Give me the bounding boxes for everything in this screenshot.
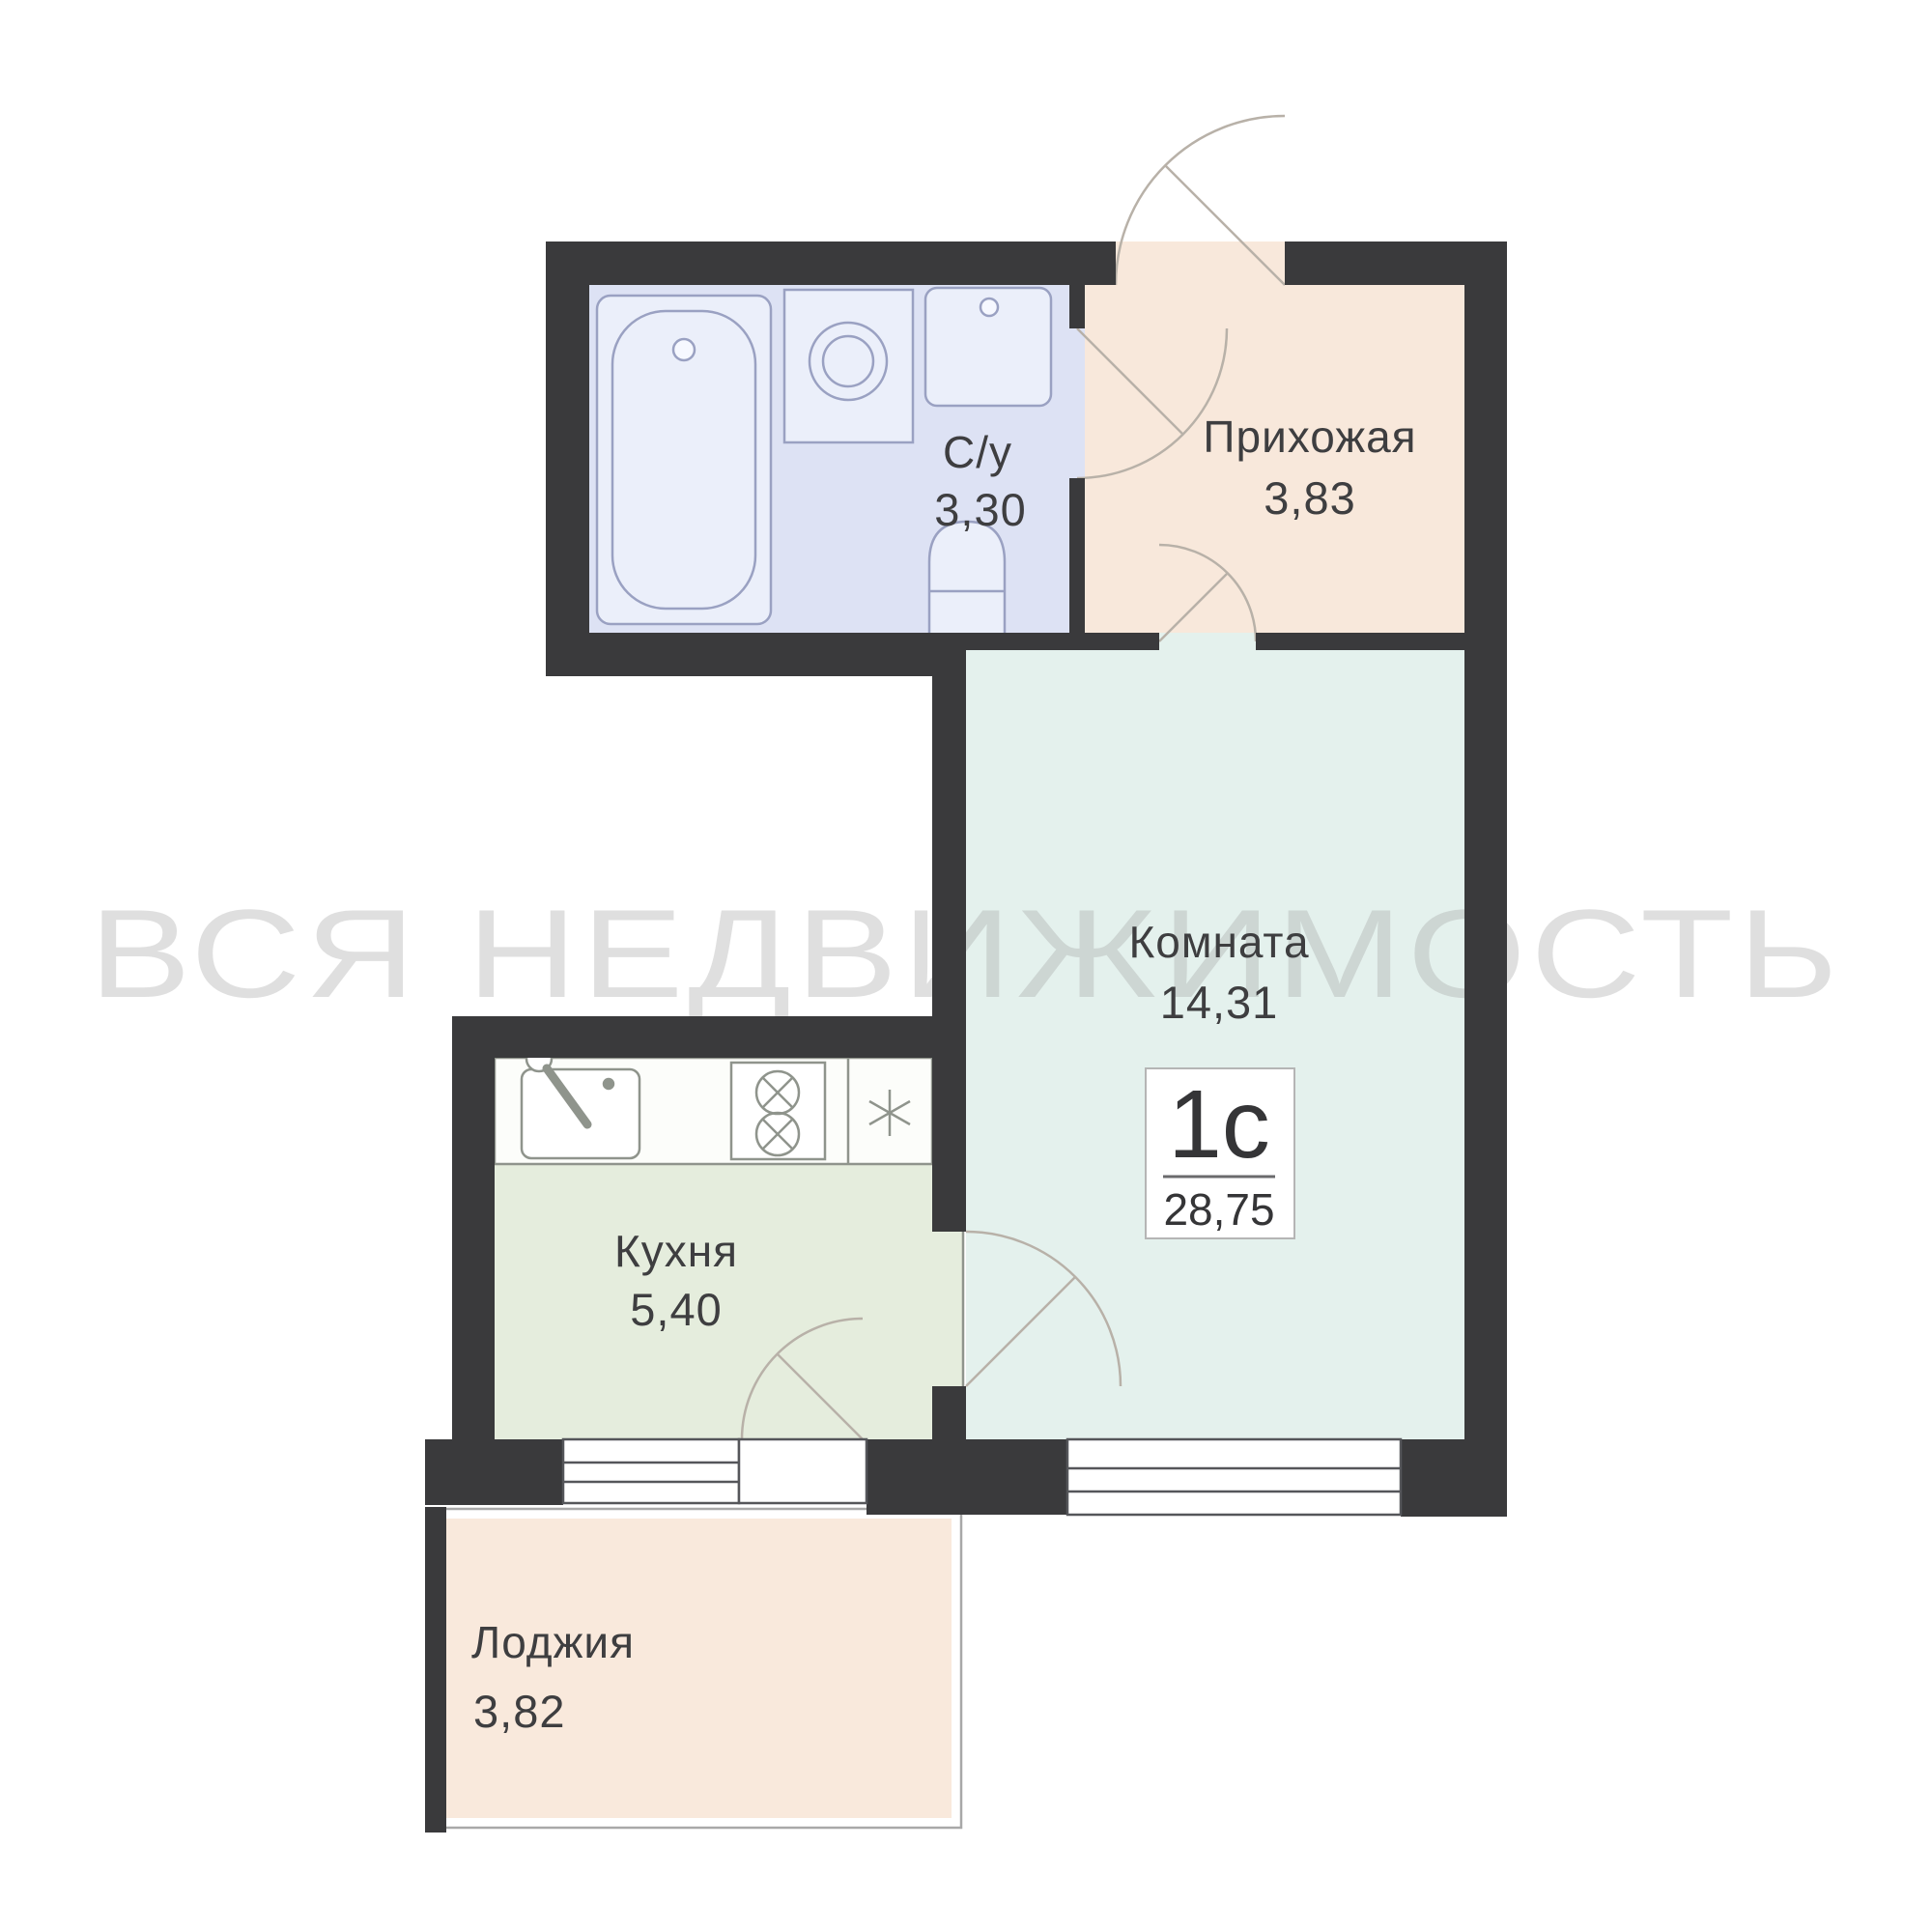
balcony-door-opening bbox=[739, 1439, 867, 1503]
kitchen-area: 5,40 bbox=[630, 1284, 722, 1335]
hallway-label: Прихожая bbox=[1203, 412, 1416, 462]
wall-loggia-left bbox=[425, 1507, 446, 1833]
wall-kitchen-top bbox=[452, 1016, 932, 1058]
wall-right bbox=[1464, 241, 1507, 1517]
wall-bathroom-bottom bbox=[546, 633, 966, 676]
toilet-icon bbox=[929, 522, 1005, 633]
floor-plan-drawing: ВСЯ НЕДВИЖИМОСТЬ bbox=[0, 0, 1932, 1932]
wall-bathroom-hallway-top bbox=[1069, 285, 1085, 328]
wall-room-window-right-pier bbox=[1401, 1439, 1507, 1517]
stove-icon bbox=[731, 1063, 825, 1159]
wall-room-left bbox=[932, 633, 966, 1232]
loggia-label: Лоджия bbox=[471, 1617, 635, 1667]
kitchen-label: Кухня bbox=[614, 1226, 738, 1276]
bathtub-icon bbox=[597, 296, 771, 624]
kitchen-window bbox=[563, 1439, 739, 1503]
wall-loggia-window-right-pier bbox=[867, 1439, 1067, 1515]
living-room-label: Комната bbox=[1128, 917, 1309, 967]
bathroom-sink-icon bbox=[925, 288, 1051, 406]
wall-loggia-window-left-pier bbox=[425, 1439, 563, 1505]
wall-hallway-room-left bbox=[966, 633, 1159, 650]
wall-kitchen-left bbox=[452, 1016, 495, 1439]
wall-bathroom-hallway-bottom bbox=[1069, 478, 1085, 633]
kitchen-door-gap-floor bbox=[932, 1232, 963, 1386]
wall-hallway-room-right bbox=[1256, 633, 1464, 650]
entrance-gap-floor bbox=[1116, 241, 1285, 285]
badge-type-label: 1с bbox=[1168, 1070, 1270, 1179]
living-room-area: 14,31 bbox=[1160, 977, 1279, 1028]
loggia-area: 3,82 bbox=[473, 1686, 565, 1737]
wall-top-left bbox=[546, 241, 1116, 285]
bathroom-door-gap-floor bbox=[1069, 328, 1085, 478]
room-window bbox=[1067, 1439, 1401, 1515]
wall-bathroom-left bbox=[546, 241, 589, 676]
bathroom-area: 3,30 bbox=[934, 484, 1026, 535]
washing-machine-icon bbox=[784, 290, 913, 442]
hallway-area: 3,83 bbox=[1264, 472, 1355, 524]
living-room-floor bbox=[966, 633, 1464, 1439]
bathroom-label: С/у bbox=[943, 427, 1012, 477]
badge-total-area: 28,75 bbox=[1163, 1184, 1274, 1235]
floor-plan-page: ВСЯ НЕДВИЖИМОСТЬ bbox=[0, 0, 1932, 1932]
apartment-type-badge: 1с 28,75 bbox=[1146, 1068, 1294, 1238]
loggia-floor bbox=[446, 1519, 952, 1818]
